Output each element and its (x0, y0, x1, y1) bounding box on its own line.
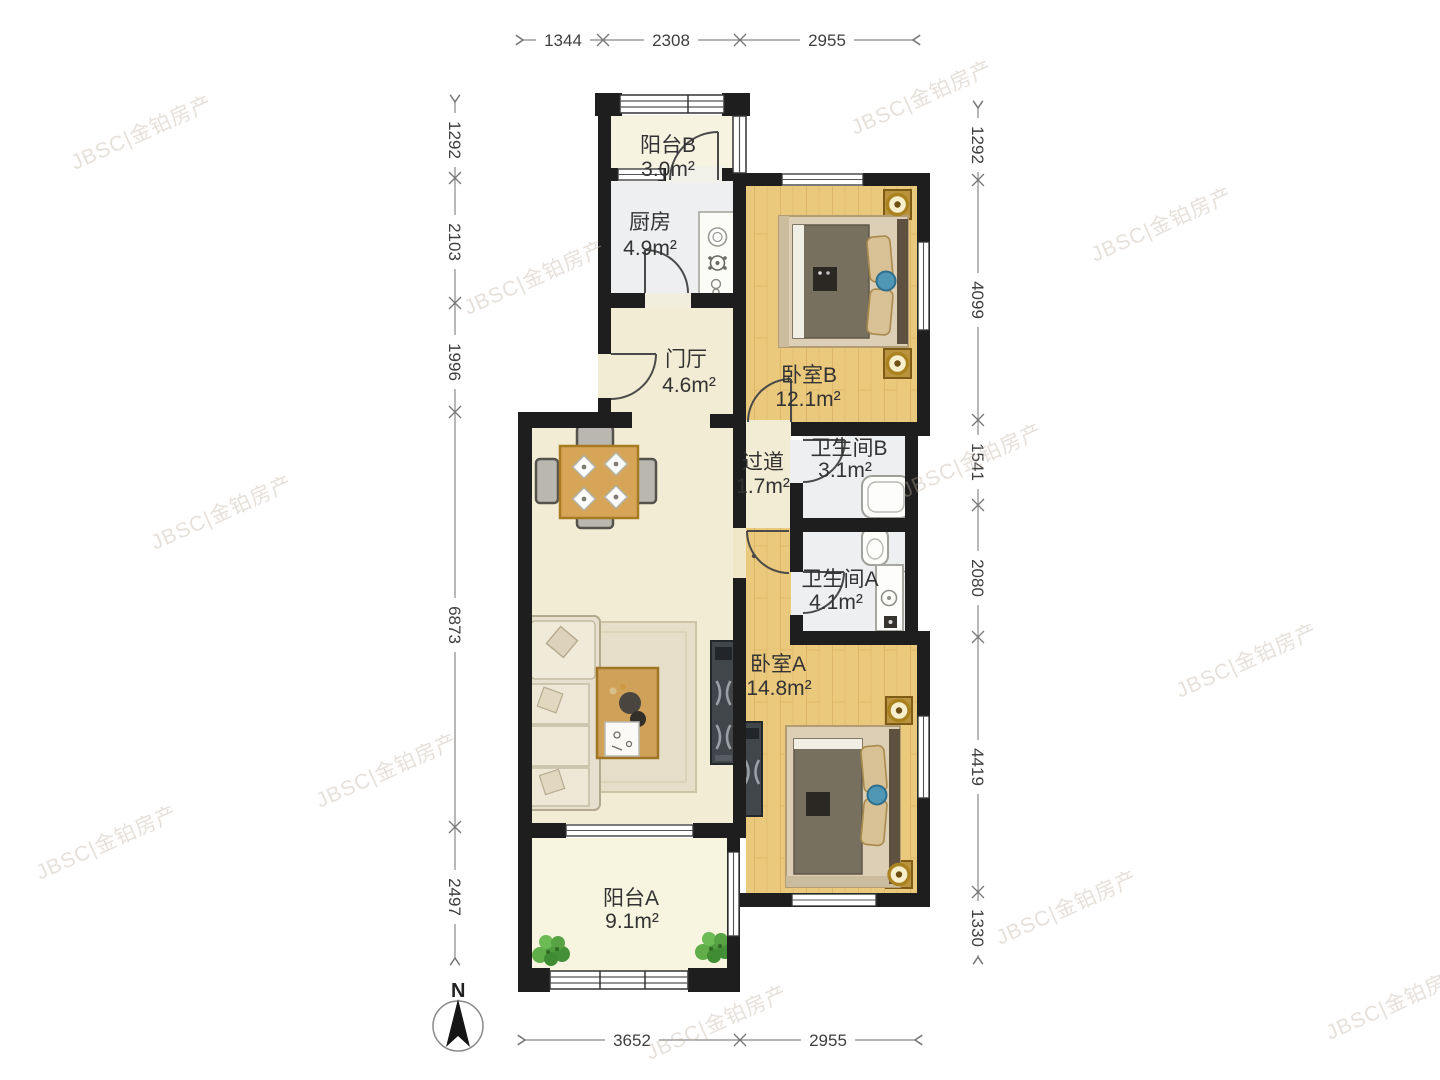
dim-right-5: 4419 (968, 748, 987, 786)
dim-left-5: 2497 (445, 878, 464, 916)
watermark-text: JBSC|金铂房产 (1088, 184, 1236, 267)
dim-right-6: 1330 (968, 909, 987, 947)
compass: N (433, 980, 483, 1051)
room-area-bedroom-b: 12.1m² (775, 388, 840, 411)
watermark-text: JBSC|金铂房产 (993, 867, 1141, 950)
room-label-bathroom-a: 卫生间A (801, 568, 878, 591)
room-area-kitchen: 4.9m² (623, 237, 677, 260)
watermark-text: JBSC|金铂房产 (68, 92, 216, 175)
room-area-corridor: 1.7m² (736, 475, 790, 498)
dim-left-3: 1996 (445, 343, 464, 381)
room-area-balcony-b: 3.0m² (641, 158, 695, 181)
room-label-balcony-b: 阳台B (640, 134, 696, 157)
room-area-balcony-a: 9.1m² (605, 910, 659, 933)
coffee-table (597, 668, 658, 758)
watermark-text: JBSC|金铂房产 (148, 472, 296, 555)
bedroom-b-east-window (918, 242, 929, 330)
sofa (526, 616, 600, 810)
balcony-b-top-window (620, 95, 724, 113)
watermark-text: JBSC|金铂房产 (643, 982, 791, 1065)
dim-right-1: 1292 (968, 126, 987, 164)
dim-left-2: 2103 (445, 223, 464, 261)
balcony-b-side-window (733, 116, 746, 173)
dim-right-2: 4099 (968, 281, 987, 319)
room-area-hall: 4.6m² (662, 374, 716, 397)
room-label-corridor: 过道 (742, 451, 784, 474)
dim-right-4: 2080 (968, 559, 987, 597)
room-label-kitchen: 厨房 (629, 211, 671, 234)
balcony-a-east-window (728, 852, 739, 936)
room-area-bathroom-b: 3.1m² (818, 459, 872, 482)
dim-top-1: 1344 (544, 31, 582, 50)
room-label-balcony-a: 阳台A (603, 887, 659, 910)
room-label-bedroom-a: 卧室A (750, 653, 806, 676)
vanity-bathroom-a (876, 565, 903, 631)
dim-left-1: 1292 (445, 121, 464, 159)
compass-needle-icon (446, 999, 470, 1047)
room-label-hall: 门厅 (665, 348, 707, 371)
dim-top-3: 2955 (808, 31, 846, 50)
room-label-bedroom-b: 卧室B (781, 364, 837, 387)
dim-left-4: 6873 (445, 606, 464, 644)
watermark-text: JBSC|金铂房产 (461, 237, 609, 320)
floorplan-canvas: 阳台B 3.0m² 厨房 4.9m² 门厅 4.6m² 卧室B 12.1m² 过… (0, 0, 1440, 1080)
room-label-bathroom-b: 卫生间B (810, 437, 887, 460)
bedroom-a-south-window (792, 894, 876, 906)
bedroom-b-north-window (782, 174, 863, 185)
dim-top-2: 2308 (652, 31, 690, 50)
bed-bedroom-a (786, 697, 912, 888)
dim-bottom-2: 2955 (809, 1031, 847, 1050)
bedroom-a-east-window (918, 716, 929, 798)
kitchen-counter (699, 212, 736, 302)
living-balcony-window (566, 825, 693, 836)
compass-north-label: N (451, 980, 465, 1002)
watermark-text: JBSC|金铂房产 (313, 730, 461, 813)
balcony-a-south-window (550, 971, 688, 989)
watermark-text: JBSC|金铂房产 (1323, 962, 1440, 1045)
floorplan-page: 阳台B 3.0m² 厨房 4.9m² 门厅 4.6m² 卧室B 12.1m² 过… (0, 0, 1440, 1080)
room-area-bathroom-a: 4.1m² (809, 591, 863, 614)
tv-stand-living (711, 641, 736, 764)
room-area-bedroom-a: 14.8m² (746, 677, 811, 700)
watermark-text: JBSC|金铂房产 (33, 802, 181, 885)
watermark-text: JBSC|金铂房产 (1173, 620, 1321, 703)
